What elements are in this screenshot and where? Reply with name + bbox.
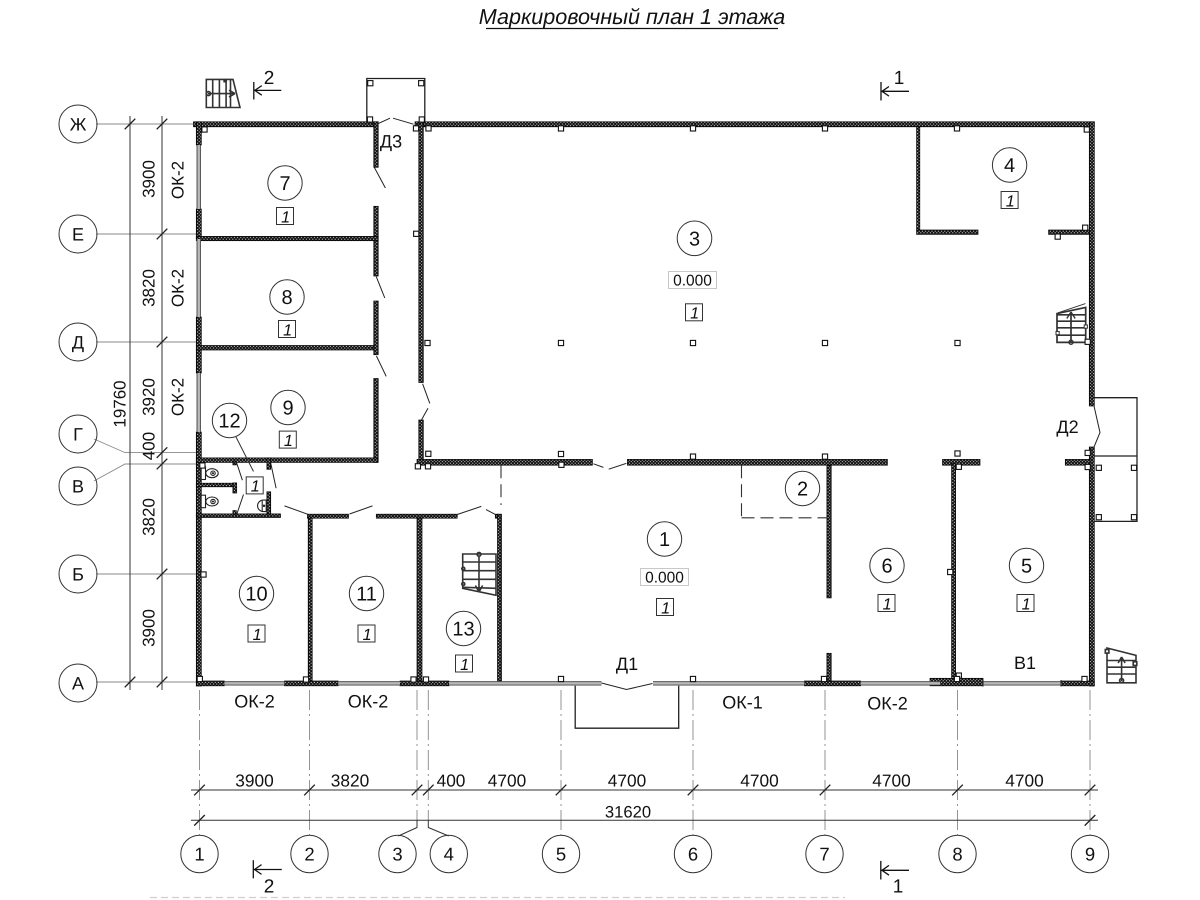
svg-text:3900: 3900 <box>139 160 158 198</box>
svg-text:5: 5 <box>1021 556 1032 578</box>
svg-text:6: 6 <box>881 556 892 578</box>
svg-text:3: 3 <box>392 843 402 864</box>
svg-text:А: А <box>72 673 84 693</box>
svg-text:3: 3 <box>689 228 700 250</box>
svg-text:0.000: 0.000 <box>673 272 712 289</box>
svg-text:1: 1 <box>659 529 670 551</box>
svg-text:4: 4 <box>1004 155 1015 177</box>
svg-text:1: 1 <box>194 843 204 864</box>
svg-text:Д: Д <box>72 332 84 352</box>
svg-text:10: 10 <box>245 584 267 606</box>
svg-text:ОК-1: ОК-1 <box>722 693 763 713</box>
svg-text:1: 1 <box>460 656 469 674</box>
svg-text:В: В <box>72 476 84 496</box>
svg-text:2: 2 <box>264 68 275 89</box>
svg-text:Д3: Д3 <box>380 131 402 151</box>
svg-text:Г: Г <box>73 424 83 444</box>
svg-text:4700: 4700 <box>608 770 646 790</box>
svg-text:3820: 3820 <box>139 498 158 536</box>
svg-text:1: 1 <box>883 595 892 613</box>
svg-text:2: 2 <box>264 877 275 898</box>
svg-text:1: 1 <box>1006 192 1015 210</box>
svg-text:1: 1 <box>283 321 292 339</box>
svg-text:3820: 3820 <box>139 269 158 307</box>
svg-text:1: 1 <box>893 877 904 898</box>
svg-text:1: 1 <box>661 599 670 617</box>
svg-text:Ж: Ж <box>70 114 87 134</box>
svg-text:3920: 3920 <box>139 378 158 416</box>
svg-text:400: 400 <box>139 432 158 460</box>
svg-text:2: 2 <box>304 843 314 864</box>
svg-text:7: 7 <box>279 173 290 195</box>
svg-text:ОК-2: ОК-2 <box>168 161 187 199</box>
svg-text:3900: 3900 <box>235 770 273 790</box>
svg-text:6: 6 <box>688 843 698 864</box>
svg-text:4700: 4700 <box>740 770 778 790</box>
svg-text:31620: 31620 <box>605 803 651 822</box>
svg-text:ОК-2: ОК-2 <box>867 694 908 714</box>
svg-text:4: 4 <box>444 843 454 864</box>
svg-text:19760: 19760 <box>110 380 129 427</box>
svg-text:1: 1 <box>281 208 290 226</box>
svg-text:2: 2 <box>797 479 808 501</box>
svg-text:1: 1 <box>894 68 905 89</box>
svg-text:ОК-2: ОК-2 <box>234 692 275 712</box>
svg-text:400: 400 <box>437 770 466 790</box>
svg-text:5: 5 <box>556 843 566 864</box>
svg-text:3820: 3820 <box>331 770 369 790</box>
svg-text:Д2: Д2 <box>1056 417 1078 437</box>
svg-text:0.000: 0.000 <box>645 569 684 586</box>
svg-text:1: 1 <box>1022 595 1031 613</box>
svg-text:Маркировочный план 1 этажа: Маркировочный план 1 этажа <box>479 4 785 29</box>
svg-text:1: 1 <box>253 626 262 644</box>
svg-text:1: 1 <box>363 626 372 644</box>
svg-text:4700: 4700 <box>488 770 526 790</box>
svg-text:1: 1 <box>690 305 699 323</box>
svg-text:9: 9 <box>282 398 293 420</box>
svg-text:Е: Е <box>72 224 84 244</box>
svg-text:1: 1 <box>251 478 260 496</box>
svg-text:3900: 3900 <box>139 609 158 647</box>
svg-text:Б: Б <box>72 564 84 584</box>
svg-text:4700: 4700 <box>1005 770 1043 790</box>
svg-text:ОК-2: ОК-2 <box>168 378 187 416</box>
svg-text:13: 13 <box>452 619 474 641</box>
svg-text:11: 11 <box>356 584 377 606</box>
svg-text:ОК-2: ОК-2 <box>168 269 187 307</box>
svg-text:9: 9 <box>1085 843 1095 864</box>
svg-text:12: 12 <box>218 411 240 433</box>
svg-text:8: 8 <box>952 843 962 864</box>
svg-text:4700: 4700 <box>872 770 910 790</box>
svg-text:Д1: Д1 <box>616 654 638 674</box>
svg-text:7: 7 <box>819 843 829 864</box>
svg-text:В1: В1 <box>1014 653 1036 673</box>
svg-text:8: 8 <box>281 287 292 309</box>
svg-text:ОК-2: ОК-2 <box>348 692 389 712</box>
svg-text:1: 1 <box>284 432 293 450</box>
